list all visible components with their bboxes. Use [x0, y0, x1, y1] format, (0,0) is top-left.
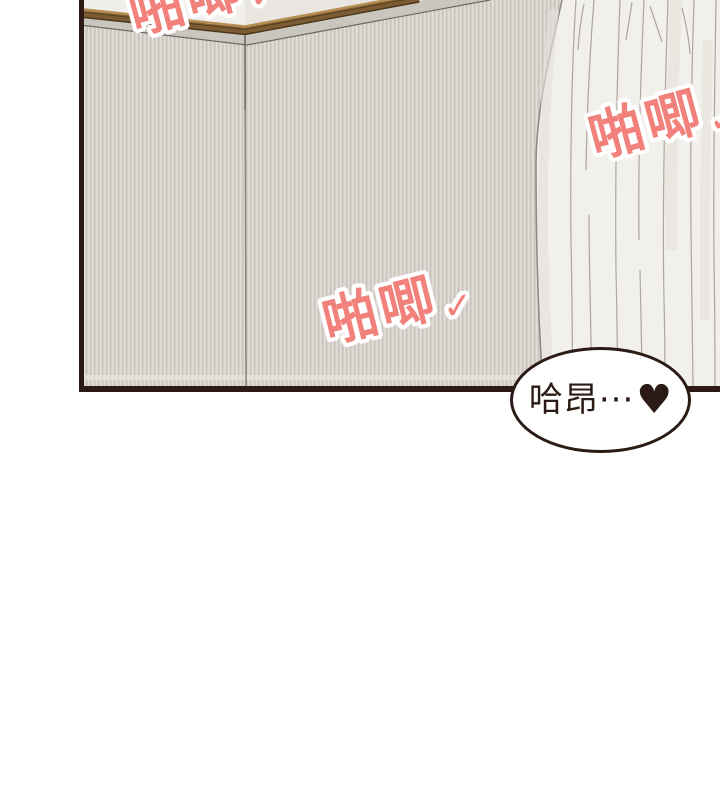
- speech-bubble: 哈昂···♥: [510, 347, 691, 453]
- checkmark-icon: ✓: [247, 0, 281, 16]
- checkmark-icon: ✓: [441, 288, 475, 327]
- comic-page: 啪唧✓ 啪唧✓ 啪唧✓ 哈昂···♥: [0, 0, 720, 800]
- baseboard: [84, 375, 536, 380]
- speech-bubble-text: 哈昂···: [529, 383, 634, 417]
- comic-panel: 啪唧✓ 啪唧✓ 啪唧✓: [79, 0, 720, 392]
- heart-icon: ♥: [636, 380, 672, 420]
